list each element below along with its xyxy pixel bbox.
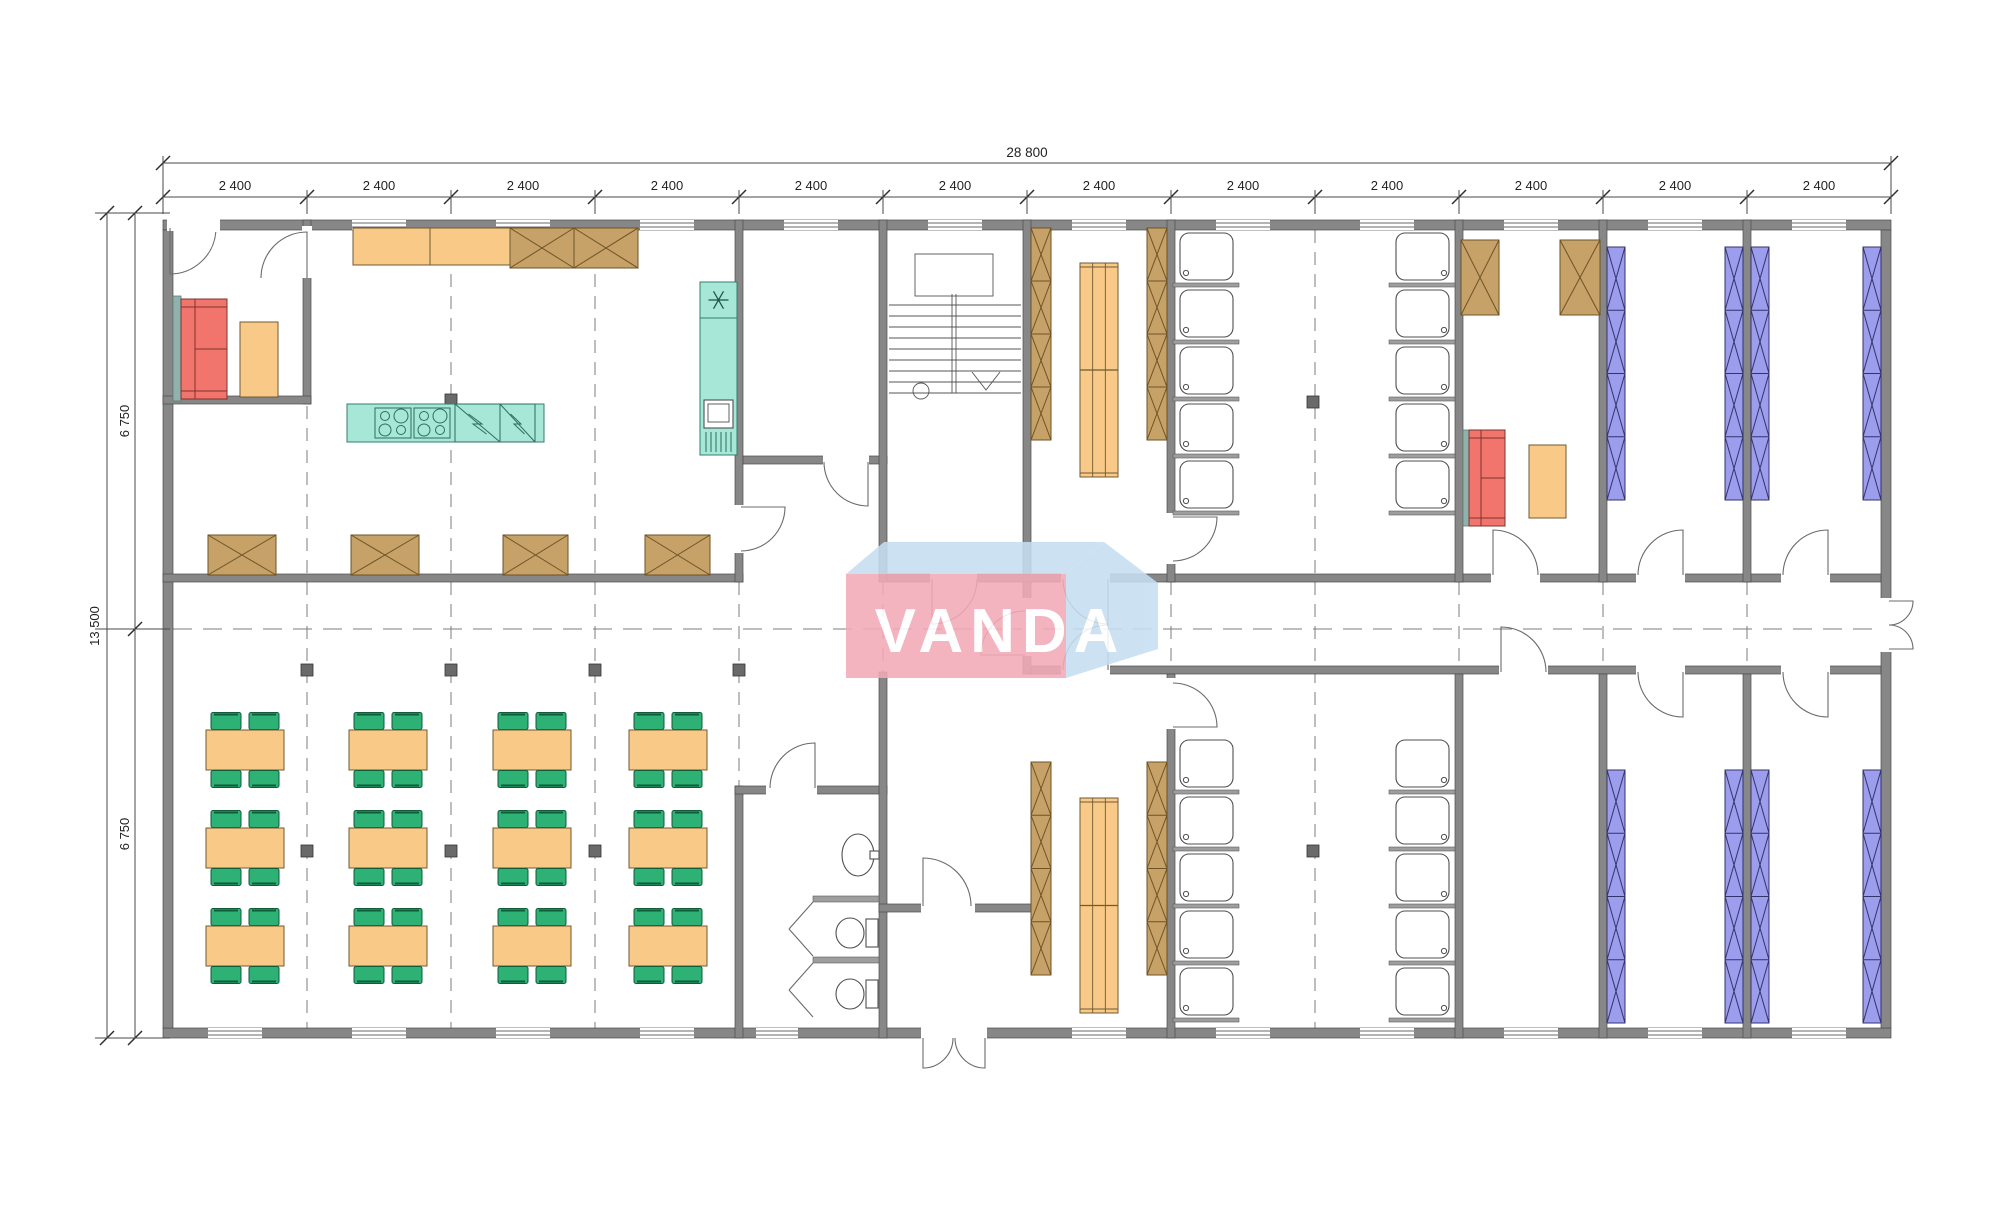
door-opening (1781, 573, 1830, 583)
toilet-icon (836, 979, 864, 1009)
dining-table (629, 926, 707, 966)
shower-partition (1389, 961, 1455, 965)
dimension-label-module: 2 400 (651, 178, 684, 193)
door-opening (921, 1027, 987, 1039)
structural-column (1307, 396, 1319, 408)
shower-partition (1173, 1018, 1239, 1022)
wall-segment (735, 786, 743, 1038)
dimension-label-total-height: 13 500 (87, 606, 102, 646)
dimension-label-module: 2 400 (1371, 178, 1404, 193)
dining-table (493, 828, 571, 868)
toilet-tank (866, 980, 878, 1008)
shower-partition (1173, 511, 1239, 515)
door-opening (734, 505, 744, 553)
kitchen-counter (353, 228, 510, 265)
window (1360, 220, 1414, 230)
dining-table (493, 730, 571, 770)
shower-partition (1173, 790, 1239, 794)
door-opening (1166, 678, 1176, 729)
wall-segment (1743, 220, 1751, 582)
shower-stall (1180, 854, 1233, 901)
toilet-icon (836, 918, 864, 948)
shower-partition (1389, 847, 1455, 851)
watermark-box-top (846, 542, 1104, 574)
shower-stall (1180, 740, 1233, 787)
structural-column (445, 845, 457, 857)
wall-segment (879, 672, 887, 1038)
door-opening (1636, 573, 1685, 583)
floor-plan-canvas: 28 800 13 500 6 750 6 750 2 4002 4002 40… (0, 0, 2000, 1216)
sofa-back-panel (1463, 430, 1469, 526)
stall-partition (813, 896, 879, 902)
side-table (240, 322, 278, 397)
shower-partition (1173, 904, 1239, 908)
structural-column (589, 664, 601, 676)
door-opening (921, 903, 975, 913)
shower-partition (1389, 340, 1455, 344)
window (1648, 220, 1702, 230)
structural-column (1307, 845, 1319, 857)
shower-partition (1389, 397, 1455, 401)
dimension-label-module: 2 400 (939, 178, 972, 193)
kitchen-island (347, 404, 544, 442)
door-opening (823, 455, 869, 465)
door-opening (1636, 665, 1685, 675)
stall-partition (813, 957, 879, 963)
window (1792, 220, 1846, 230)
dimension-label-module: 2 400 (1515, 178, 1548, 193)
structural-column (733, 664, 745, 676)
shower-stall (1180, 290, 1233, 337)
structural-column (301, 664, 313, 676)
dining-table (349, 828, 427, 868)
door-opening (167, 219, 220, 231)
shower-partition (1389, 511, 1455, 515)
dining-table (349, 926, 427, 966)
wall-segment (879, 220, 887, 582)
window (1504, 1028, 1558, 1038)
door-opening (766, 785, 817, 795)
window (756, 1028, 798, 1038)
dining-table (206, 828, 284, 868)
dining-table (493, 926, 571, 966)
fridge-icon (700, 282, 737, 455)
window (640, 1028, 694, 1038)
window (208, 1028, 262, 1038)
shower-partition (1389, 904, 1455, 908)
dimension-label-module: 2 400 (1803, 178, 1836, 193)
dining-table (206, 730, 284, 770)
wall-segment (1599, 674, 1607, 1038)
window (1216, 220, 1270, 230)
shower-partition (1173, 961, 1239, 965)
window (640, 220, 694, 230)
dimension-label-module: 2 400 (1227, 178, 1260, 193)
wash-basin-icon (842, 834, 874, 876)
shower-partition (1173, 397, 1239, 401)
dining-table (206, 926, 284, 966)
dining-table (629, 828, 707, 868)
window (496, 1028, 550, 1038)
door-opening (1499, 665, 1548, 675)
dimension-label-module: 2 400 (1659, 178, 1692, 193)
dimension-label-module: 2 400 (363, 178, 396, 193)
side-table (1529, 445, 1566, 518)
dimension-label-module: 2 400 (795, 178, 828, 193)
shower-stall (1180, 347, 1233, 394)
door-opening (1781, 665, 1830, 675)
shower-partition (1389, 454, 1455, 458)
watermark-logo: VANDA (846, 542, 1158, 678)
shower-partition (1173, 283, 1239, 287)
structural-column (301, 845, 313, 857)
shower-partition (1389, 790, 1455, 794)
basin-tap-icon (870, 851, 879, 859)
dimension-label-module: 2 400 (1083, 178, 1116, 193)
wall-segment (1455, 674, 1463, 1038)
window (784, 220, 838, 230)
structural-column (445, 664, 457, 676)
window (1360, 1028, 1414, 1038)
window (1648, 1028, 1702, 1038)
shower-partition (1173, 454, 1239, 458)
toilet-tank (866, 919, 878, 947)
window (1216, 1028, 1270, 1038)
shower-stall (1180, 911, 1233, 958)
window (928, 220, 982, 230)
dimension-label-module: 2 400 (219, 178, 252, 193)
floor-plan-page: 28 800 13 500 6 750 6 750 2 4002 4002 40… (0, 0, 2000, 1216)
door-opening (1491, 573, 1540, 583)
dining-table (629, 730, 707, 770)
wall-segment (1743, 674, 1751, 1038)
window (1072, 1028, 1126, 1038)
watermark-text: VANDA (875, 597, 1126, 666)
window (352, 1028, 406, 1038)
dining-table (349, 730, 427, 770)
shower-stall (1180, 968, 1233, 1015)
shower-partition (1173, 847, 1239, 851)
shower-partition (1173, 340, 1239, 344)
window (1504, 220, 1558, 230)
dimension-label-upper-half: 6 750 (117, 405, 132, 438)
dimension-label-total-width: 28 800 (1006, 145, 1047, 160)
window (1792, 1028, 1846, 1038)
wall-segment (1023, 220, 1031, 582)
dimension-label-lower-half: 6 750 (117, 818, 132, 851)
sofa-back-panel (173, 296, 181, 401)
shower-partition (1389, 1018, 1455, 1022)
window (1072, 220, 1126, 230)
door-opening (1166, 513, 1176, 564)
shower-stall (1180, 404, 1233, 451)
shower-stall (1180, 797, 1233, 844)
structural-column (589, 845, 601, 857)
dimension-label-module: 2 400 (507, 178, 540, 193)
shower-stall (1180, 461, 1233, 508)
shower-stall (1180, 233, 1233, 280)
wall-segment (163, 1028, 1891, 1038)
wall-segment (1031, 666, 1881, 674)
shower-partition (1389, 283, 1455, 287)
